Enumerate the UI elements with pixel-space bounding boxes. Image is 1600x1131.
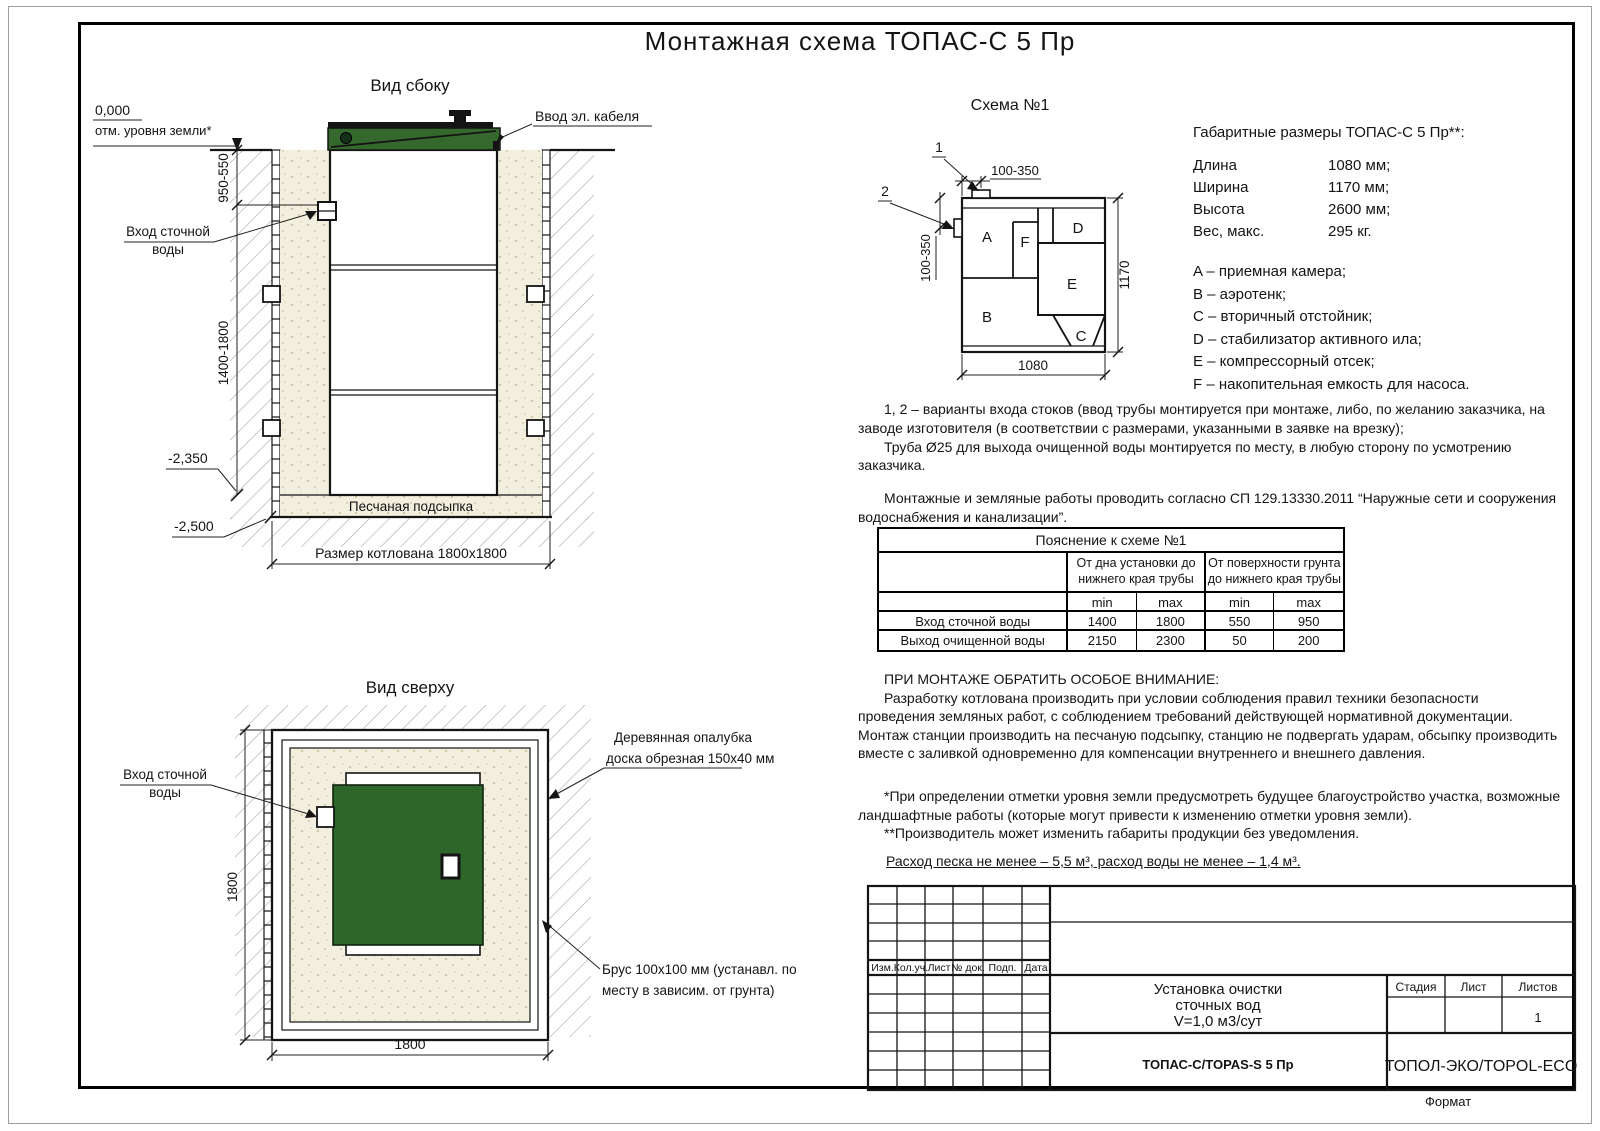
zero-level-callout: 0,000 отм. уровня земли* [93, 102, 242, 151]
legend-item: E – компрессорный отсек; [1193, 353, 1563, 376]
sand-bed-label: Песчаная подсыпка [349, 499, 474, 514]
side-tank [330, 150, 497, 495]
table-title: Пояснение к схеме №1 [879, 529, 1343, 553]
svg-text:-2,350: -2,350 [168, 450, 208, 466]
spec-row: Ширина1170 мм; [1193, 179, 1563, 201]
footnote: *При определении отметки уровня земли пр… [858, 787, 1564, 824]
beam-label-2: месту в зависим. от грунта) [602, 983, 774, 998]
doc-title-line2: сточных вод [1175, 997, 1261, 1014]
schema-box: A F D E B C [954, 190, 1105, 352]
title-block-stage-table: Стадия Лист Листов 1 [1396, 980, 1558, 1025]
cable-entry-label: Ввод эл. кабеля [535, 108, 639, 124]
sheets-value: 1 [1534, 1010, 1541, 1025]
footnote: **Производитель может изменить габариты … [858, 824, 1564, 843]
table-cell: 550 [1206, 612, 1275, 631]
attention-block: ПРИ МОНТАЖЕ ОБРАТИТЬ ОСОБОЕ ВНИМАНИЕ: Ра… [858, 670, 1558, 763]
top-inlet-box [317, 807, 334, 827]
table-group-header: От поверхности грунта до нижнего края тр… [1206, 553, 1343, 593]
spec-row: Вес, макс.295 кг. [1193, 223, 1563, 245]
legend-item: B – аэротенк; [1193, 286, 1563, 309]
table-corner-cell [879, 553, 1068, 593]
title-block-column-headers: Изм. Кол.уч. Лист № док. Подп. Дата [871, 962, 1048, 974]
table-cell: 1800 [1137, 612, 1206, 631]
legend-item: A – приемная камера; [1193, 263, 1563, 286]
beam-label-1: Брус 100х100 мм (устанавл. по [602, 962, 797, 977]
side-lid [328, 110, 500, 150]
side-inlet-label-2: воды [152, 242, 184, 257]
table-cell: 50 [1206, 631, 1275, 650]
compartment-legend: A – приемная камера; B – аэротенк; C – в… [1193, 263, 1563, 398]
col-list: Лист [928, 962, 951, 974]
ground-level-label: отм. уровня земли* [95, 123, 212, 138]
col-koluch: Кол.уч. [894, 962, 928, 974]
note-paragraph: Труба Ø25 для выхода очищенной воды монт… [858, 438, 1564, 476]
compartment-f: F [1020, 234, 1029, 251]
sheet-header: Лист [1460, 980, 1487, 994]
note-paragraph: 1, 2 – варианты входа стоков (ввод трубы… [858, 400, 1564, 438]
compartment-d: D [1073, 220, 1084, 237]
specs-heading: Габаритные размеры ТОПАС-С 5 Пр**: [1193, 124, 1563, 141]
specs-block: Габаритные размеры ТОПАС-С 5 Пр**: Длина… [1193, 124, 1563, 398]
company-name: ТОПОЛ-ЭКО/TOPOL-ECO [1385, 1058, 1578, 1075]
table-row-label: Выход очищенной воды [879, 631, 1068, 650]
table-cell: 1400 [1068, 612, 1137, 631]
legend-item: F – накопительная емкость для насоса. [1193, 376, 1563, 399]
table-row-label: Вход сточной воды [879, 612, 1068, 631]
table-cell: 200 [1274, 631, 1343, 650]
dim-1400-1800: 1400-1800 [216, 321, 231, 386]
top-tank [317, 773, 483, 955]
note-paragraph: Монтажные и земляные работы проводить со… [858, 489, 1564, 527]
side-inlet-label-1: Вход сточной [126, 224, 210, 239]
title-block: Изм. Кол.уч. Лист № док. Подп. Дата Уста… [858, 878, 1580, 1095]
pit-size-label: Размер котлована 1800х1800 [315, 545, 507, 561]
explanation-table: Пояснение к схеме №1 От дна установки до… [877, 527, 1345, 652]
footnotes-block: *При определении отметки уровня земли пр… [858, 787, 1564, 843]
cable-entry-callout: Ввод эл. кабеля [493, 108, 652, 150]
table-minmax-header: min [1068, 593, 1137, 612]
compartment-e: E [1067, 276, 1077, 293]
drawing-sheet: Монтажная схема ТОПАС-С 5 Пр Вид сбоку [0, 0, 1600, 1131]
col-podp: Подп. [989, 962, 1017, 974]
side-view-title: Вид сбоку [370, 76, 450, 95]
dim-950-550: 950-550 [216, 153, 231, 203]
table-group-header: От дна установки до нижнего края трубы [1068, 553, 1205, 593]
attention-heading: ПРИ МОНТАЖЕ ОБРАТИТЬ ОСОБОЕ ВНИМАНИЕ: [858, 670, 1558, 689]
compartment-a: A [982, 229, 992, 246]
consumption-note: Расход песка не менее – 5,5 м³, расход в… [886, 853, 1301, 869]
top-dim-vertical: 1800 [225, 872, 240, 902]
spec-row: Высота2600 мм; [1193, 201, 1563, 223]
schema-inlet-2 [954, 219, 962, 237]
model-name: ТОПАС-С/TOPAS-S 5 Пр [1142, 1057, 1293, 1072]
table-cell: 2150 [1068, 631, 1137, 650]
compartment-b: B [982, 309, 992, 326]
spec-row: Длина1080 мм; [1193, 157, 1563, 179]
attention-body: Разработку котлована производить при усл… [858, 689, 1558, 763]
vent-pipe [454, 115, 466, 128]
legend-item: C – вторичный отстойник; [1193, 308, 1563, 331]
schema-inlet-1 [972, 190, 990, 198]
schema-drawing: Схема №1 A F D E B C [855, 90, 1160, 395]
notes-block: 1, 2 – варианты входа стоков (ввод трубы… [858, 400, 1564, 527]
side-view-drawing: Вид сбоку [80, 75, 680, 600]
col-ndok: № док. [951, 962, 985, 974]
marker-2: 2 [881, 183, 889, 199]
top-inlet-label-1: Вход сточной [123, 767, 207, 782]
col-izm: Изм. [871, 962, 894, 974]
format-label: Формат [1425, 1094, 1471, 1109]
schema-dim-width: 1080 [1018, 358, 1048, 373]
top-dim-horizontal: 1800 [394, 1036, 425, 1052]
doc-title-line1: Установка очистки [1154, 981, 1283, 998]
formwork-label-1: Деревянная опалубка [614, 730, 753, 745]
marker-1: 1 [935, 139, 943, 155]
doc-title-line3: V=1,0 м3/сут [1174, 1013, 1263, 1030]
col-data: Дата [1024, 962, 1047, 974]
table-minmax-header: min [1206, 593, 1275, 612]
top-inlet-label-2: воды [149, 785, 181, 800]
top-view-title: Вид сверху [366, 678, 455, 697]
title-block-doc-title: Установка очистки сточных вод V=1,0 м3/с… [1154, 981, 1283, 1030]
table-minmax-header: max [1274, 593, 1343, 612]
page-title: Монтажная схема ТОПАС-С 5 Пр [540, 26, 1180, 57]
schema-dim-top: 100-350 [991, 163, 1039, 178]
schema-dim-left: 100-350 [918, 234, 933, 282]
zero-mark: 0,000 [95, 102, 130, 118]
top-view-drawing: Вид сверху 1800 [90, 665, 810, 1065]
stage-header: Стадия [1396, 980, 1437, 994]
legend-item: D – стабилизатор активного ила; [1193, 331, 1563, 354]
table-cell: 2300 [1137, 631, 1206, 650]
table-minmax-header: max [1137, 593, 1206, 612]
schema-title: Схема №1 [971, 97, 1050, 114]
formwork-label-2: доска обрезная 150х40 мм [606, 751, 774, 766]
svg-text:-2,500: -2,500 [174, 518, 214, 534]
compartment-c: C [1076, 328, 1087, 345]
schema-dim-height: 1170 [1117, 260, 1132, 289]
sheets-header: Листов [1519, 980, 1558, 994]
table-cell: 950 [1274, 612, 1343, 631]
top-vent-box [442, 855, 459, 878]
